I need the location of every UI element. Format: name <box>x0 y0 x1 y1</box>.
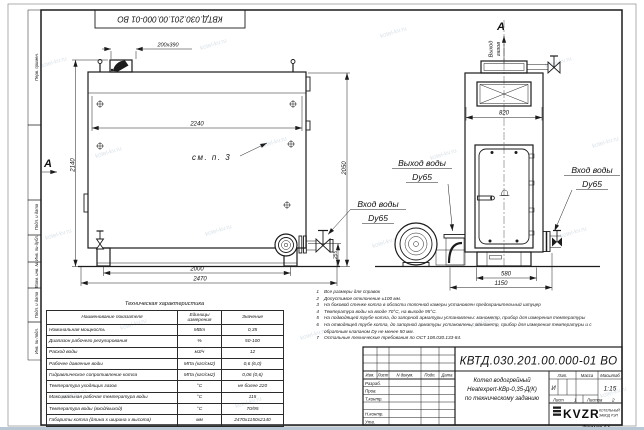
mass-label: Масса <box>581 373 594 378</box>
pipe-labels: Выход воды Dy65 Вход воды Dy65 Вход воды… <box>328 158 620 235</box>
explosion-panel <box>477 82 531 106</box>
sig-row: Пров. <box>365 389 377 394</box>
note-item: 6На отводящей трубе котла, до запорной а… <box>312 322 596 335</box>
tech-header-row: Наименование показателя Единицы измерени… <box>47 311 284 325</box>
sig-row: Разраб. <box>365 381 381 386</box>
scale-value: 1:15 <box>604 386 617 393</box>
leg <box>97 248 110 266</box>
svg-text:Dy65: Dy65 <box>368 213 388 223</box>
see-note-ref: см. п. 3 <box>192 153 231 162</box>
tech-row: Расход водым3/ч12 <box>47 347 284 358</box>
tech-row: Габариты котла (длина х ширина х высота)… <box>47 415 284 426</box>
note-item: 7Остальные технические требования по ОСТ… <box>312 335 596 342</box>
dim-1150: 1150 <box>495 281 509 287</box>
tech-row: Температура уходящих газов°Сне более 220 <box>47 381 284 392</box>
margin-label: Подп. и дата <box>34 291 39 318</box>
col-list: Лист <box>377 373 389 378</box>
logo-bars-icon <box>553 407 561 409</box>
water-outlet-label: Выход воды Dy65 <box>392 158 453 231</box>
tech-row: Гидравлическое сопротивление котлаМПа (к… <box>47 370 284 381</box>
logo-bars-icon <box>553 414 561 416</box>
dim-chimney: 200x390 <box>156 43 179 49</box>
side-view <box>78 60 340 267</box>
tech-table: Наименование показателя Единицы измерени… <box>46 310 284 427</box>
kvzr-logo: KVZR КОТЕЛЬНЫЙ ЗАВОД РЭП <box>553 407 620 422</box>
notes-list: 1Все размеры для справок 2Допустимое отк… <box>312 289 596 342</box>
tech-row: Температура воды (вход/выход)°С70/95 <box>47 404 284 415</box>
note-item: 5На подводящей трубе котла, до запорной … <box>312 315 596 322</box>
margin-column: Перв. примен. Подп. и дата Инв. № дубл. … <box>28 10 41 360</box>
drawing-sheet: kotel-kv.ru kotel-kv.ru kotel-kv.ru kote… <box>0 0 644 430</box>
dim-820: 820 <box>499 111 510 117</box>
inlet-flange <box>543 231 562 252</box>
tech-row: Максимальная рабочая температура воды°С1… <box>47 392 284 403</box>
tech-table-title: Техническая характеристика <box>46 301 283 310</box>
sheet-label: Лист <box>552 397 564 402</box>
svg-text:Dy65: Dy65 <box>582 179 602 189</box>
product-name: по техническому заданию <box>465 396 540 402</box>
tech-row: Номинальная мощностьМВт0,35 <box>47 325 284 336</box>
svg-text:Вход воды: Вход воды <box>571 165 613 175</box>
sheets-label: Листов <box>586 397 603 402</box>
product-name: Heatexpert-КВр-0,35-Д(К) <box>467 387 537 393</box>
front-view: A Выход газов <box>375 20 600 268</box>
tech-row: Рабочее давление водыМПа (кгс/см2)0,6 (6… <box>47 358 284 369</box>
air-valve <box>548 56 560 73</box>
scale-label: Масштаб <box>600 373 620 378</box>
logo-caption: КОТЕЛЬНЫЙ <box>599 409 620 413</box>
logo-caption: ЗАВОД РЭП <box>599 414 619 418</box>
tech-row: Диапазон рабочего регулирования%50-100 <box>47 336 284 347</box>
dim-580: 580 <box>501 272 512 278</box>
dim-2140: 2140 <box>71 158 77 173</box>
col-data: Дата <box>440 373 453 378</box>
dim-2240: 2240 <box>189 122 204 128</box>
sig-row: Т.контр. <box>365 396 383 401</box>
logo-text: KVZR <box>563 407 600 421</box>
dim-2000: 2000 <box>189 267 204 273</box>
sheet-value: 1 <box>574 397 577 402</box>
section-letter-front: A <box>496 21 505 33</box>
water-inlet-label-front: Вход воды Dy65 <box>555 165 621 231</box>
product-name: Котел водогрейный <box>473 377 531 384</box>
water-inlet-label-side: Вход воды Dy65 <box>328 199 406 235</box>
door-handle <box>478 196 492 200</box>
col-izm: Изм. <box>366 373 375 378</box>
chimney-damper <box>113 60 129 71</box>
lit-label: Лит. <box>557 373 568 378</box>
sig-row: Н.контр. <box>365 412 384 417</box>
lifting-lug <box>291 60 295 73</box>
dim-255: 255 <box>333 251 339 261</box>
top-stamp-number-text: КВТД.030.201.00.000-01 ВО <box>117 15 223 24</box>
svg-text:Dy65: Dy65 <box>412 172 432 182</box>
logo-bars-icon <box>553 410 561 412</box>
dim-2470: 2470 <box>192 277 207 283</box>
margin-label: Перв. примен. <box>34 53 39 81</box>
tech-characteristics: Техническая характеристика Наименование … <box>46 301 283 427</box>
col-podp: Подп. <box>424 373 435 378</box>
doc-number: КВТД.030.201.00.000-01 ВО <box>460 356 618 368</box>
gas-outlet-label: Выход <box>489 41 495 58</box>
section-letter-side: A <box>43 158 52 170</box>
door-latch <box>502 190 508 196</box>
note-item: 1Все размеры для справок <box>312 289 596 296</box>
dim-2050: 2050 <box>342 161 348 176</box>
margin-label: Инв. № дубл. <box>34 235 39 261</box>
svg-text:Вход воды: Вход воды <box>357 199 399 209</box>
lit-value: И <box>551 386 556 392</box>
furnace-door <box>475 145 534 248</box>
note-item: 3На боковой стенке котла в области топоч… <box>312 302 596 309</box>
drain-valve <box>97 231 104 249</box>
svg-text:Выход воды: Выход воды <box>398 158 447 168</box>
lifting-lug <box>98 60 102 73</box>
gas-outlet-label: газов <box>496 42 502 56</box>
col-dokum: N докум. <box>397 373 414 378</box>
margin-label: Взам. инв. № <box>34 262 39 288</box>
margin-label: Подп. и дата <box>34 203 39 230</box>
margin-label: Инв. № подл. <box>34 328 39 354</box>
title-block: Изм. Лист N докум. Подп. Дата Разраб. Пр… <box>363 347 622 430</box>
top-stamp: КВТД.030.201.00.000-01 ВО <box>95 10 245 28</box>
sheets-value: 2 <box>611 397 615 402</box>
sig-row: Утв. <box>365 419 375 424</box>
